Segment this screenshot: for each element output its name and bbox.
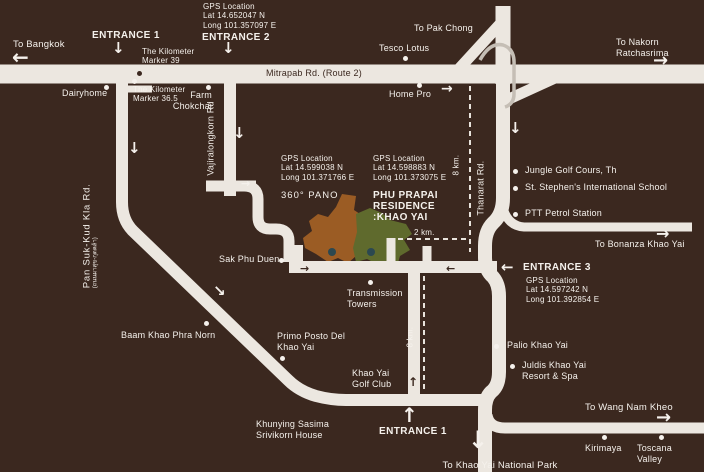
golf-club-label: Khao Yai Golf Club	[352, 368, 391, 389]
transmission-line2: Towers	[347, 299, 403, 310]
residence-name: PHU PRAPAI RESIDENCE :KHAO YAI	[373, 190, 438, 224]
toscana-line2: Valley	[637, 454, 672, 465]
km39-line1: The Kilometer	[142, 47, 194, 56]
access-arrow-left-icon: ←	[446, 263, 455, 274]
thanarat-arrow-down-icon: ↓	[509, 121, 522, 136]
pansuk-arrow-down-icon: ↓	[128, 141, 141, 156]
palio-label: Palio Khao Yai	[507, 340, 568, 351]
gps-residence-block: GPS Location Lat 14.598883 N Long 101.37…	[373, 154, 446, 182]
to-pak-chong-label: To Pak Chong	[414, 23, 473, 34]
toscana-line1: Toscana	[637, 443, 672, 454]
residence-name-line1: PHU PRAPAI	[373, 190, 438, 201]
baam-label: Baam Khao Phra Norn	[121, 330, 215, 341]
distance-8km-left: 8 km.	[406, 327, 415, 348]
thanarat-road-label: Thanarat Rd.	[475, 161, 486, 216]
residence-name-line2: RESIDENCE	[373, 201, 438, 212]
sak-phu-duen-label: Sak Phu Duen	[219, 254, 279, 265]
gps-res-line1: GPS Location	[373, 154, 446, 163]
golf-line2: Golf Club	[352, 379, 391, 390]
pansuk-road-name: Pan Suk-Kud Kla Rd.	[82, 183, 93, 288]
to-bangkok-arrow-left-icon: ←	[12, 47, 29, 67]
palio-dot	[494, 344, 499, 349]
tesco-dot	[403, 56, 408, 61]
juldis-line1: Juldis Khao Yai	[522, 360, 586, 371]
primo-dot	[280, 356, 285, 361]
gps-top-block: GPS Location Lat 14.652047 N Long 101.35…	[203, 2, 276, 30]
primo-label: Primo Posto Del Khao Yai	[277, 331, 345, 352]
toscana-label: Toscana Valley	[637, 443, 672, 464]
road-wang-nam-kheo	[487, 415, 704, 428]
primo-line2: Khao Yai	[277, 342, 345, 353]
gps-e3-line2: Lat 14.597242 N	[526, 285, 599, 294]
khao-yai-direction-map: GPS Location Lat 14.652047 N Long 101.35…	[0, 0, 704, 472]
gps-label: GPS Location	[203, 2, 276, 11]
juldis-line2: Resort & Spa	[522, 371, 586, 382]
jungle-label: Jungle Golf Cours, Th	[525, 165, 617, 176]
tesco-label: Tesco Lotus	[379, 43, 429, 54]
juldis-label: Juldis Khao Yai Resort & Spa	[522, 360, 586, 381]
to-nakorn-arrow-right-icon: →	[653, 52, 668, 70]
to-bonanza-arrow-right-icon: →	[656, 226, 669, 242]
gps-lat: Lat 14.652047 N	[203, 11, 276, 20]
kirimaya-label: Kirimaya	[585, 443, 622, 454]
distance-8km-right: 8 km.	[452, 155, 461, 176]
ptt-dot	[513, 212, 518, 217]
homepro-arrow-right-icon: →	[441, 82, 453, 96]
khunying-line1: Khunying Sasima	[256, 419, 329, 430]
transmission-label: Transmission Towers	[347, 288, 403, 309]
km39-line2: Marker 39	[142, 56, 194, 65]
residence-name-line3: :KHAO YAI	[373, 212, 438, 223]
homepro-dot	[417, 83, 422, 88]
parcel-pano-dot	[328, 248, 336, 256]
sak-phu-duen-dot	[279, 258, 284, 263]
entrance3-arrow-left-icon: ←	[501, 260, 514, 275]
transmission-dot	[368, 280, 373, 285]
entrance1-bottom-label: ENTRANCE 1	[379, 426, 447, 438]
cross-branch-arrow-right-icon: →	[241, 178, 250, 189]
to-national-park-label: To Khao Yai National Park	[420, 460, 580, 471]
entrance1-top-label: ENTRANCE 1	[92, 30, 160, 42]
km365-dot	[132, 79, 137, 84]
stephen-label: St. Stephen's International School	[525, 182, 667, 193]
primo-line1: Primo Posto Del	[277, 331, 345, 342]
access-arrow-right-icon: →	[300, 263, 309, 274]
gps-entrance3-block: GPS Location Lat 14.597242 N Long 101.39…	[526, 276, 599, 304]
kirimaya-dot	[602, 435, 607, 440]
dairyhome-dot	[104, 85, 109, 90]
stephen-dot	[513, 186, 518, 191]
entrance1-road-arrow-up-icon: ↑	[408, 376, 418, 388]
ptt-label: PTT Petrol Station	[525, 208, 602, 219]
national-park-arrow-down-icon: ↓	[468, 428, 488, 452]
distance-2km: 2 km.	[414, 228, 435, 237]
pansuk-road-label: Pan Suk-Kud Kla Rd. (ถนนผาสุข-กุดคล้า)	[82, 183, 100, 288]
entrance1-top-arrow-down-icon: ↓	[112, 41, 125, 56]
km39-dot	[137, 71, 142, 76]
gps-pano-line2: Lat 14.599038 N	[281, 163, 354, 172]
jungle-dot	[513, 169, 518, 174]
gps-e3-line3: Long 101.392854 E	[526, 295, 599, 304]
juldis-dot	[510, 364, 515, 369]
gps-e3-line1: GPS Location	[526, 276, 599, 285]
gps-res-line2: Lat 14.598883 N	[373, 163, 446, 172]
farm-chokchai-dot	[206, 85, 211, 90]
pano-caption: 360° PANO	[281, 190, 339, 201]
to-bonanza-label: To Bonanza Khao Yai	[595, 239, 685, 250]
diagonal-arrow-down-right-icon: ↘	[213, 284, 226, 299]
entrance2-top-label: ENTRANCE 2	[202, 32, 270, 44]
baam-dot	[204, 321, 209, 326]
entrance2-top-arrow-down-icon: ↓	[222, 41, 235, 56]
gps-pano-line1: GPS Location	[281, 154, 354, 163]
farm-line1: Farm	[168, 90, 212, 101]
golf-line1: Khao Yai	[352, 368, 391, 379]
dairyhome-label: Dairyhome	[62, 88, 107, 99]
entrance3-label: ENTRANCE 3	[523, 262, 591, 274]
khunying-line2: Srivikorn House	[256, 430, 329, 441]
pansuk-road-thai: (ถนนผาสุข-กุดคล้า)	[93, 183, 100, 288]
mitrapab-road-label: Mitrapab Rd. (Route 2)	[266, 68, 362, 79]
vajiralongkorn-road-label: Vajiralongkorn Rd	[205, 101, 216, 175]
gps-pano-line3: Long 101.371766 E	[281, 173, 354, 182]
nakorn-line1: To Nakorn	[616, 37, 669, 48]
transmission-line1: Transmission	[347, 288, 403, 299]
gps-res-line3: Long 101.373075 E	[373, 173, 446, 182]
toscana-dot	[659, 435, 664, 440]
vajiralongkorn-arrow-down-icon: ↓	[233, 126, 246, 141]
khunying-label: Khunying Sasima Srivikorn House	[256, 419, 329, 440]
km39-label: The Kilometer Marker 39	[142, 47, 194, 66]
homepro-label: Home Pro	[389, 89, 431, 100]
parcel-residence-dot	[367, 248, 375, 256]
entrance1-bottom-arrow-up-icon: ↑	[401, 405, 418, 425]
wang-nam-kheo-arrow-right-icon: →	[656, 409, 671, 427]
gps-long: Long 101.357097 E	[203, 21, 276, 30]
gps-pano-block: GPS Location Lat 14.599038 N Long 101.37…	[281, 154, 354, 182]
